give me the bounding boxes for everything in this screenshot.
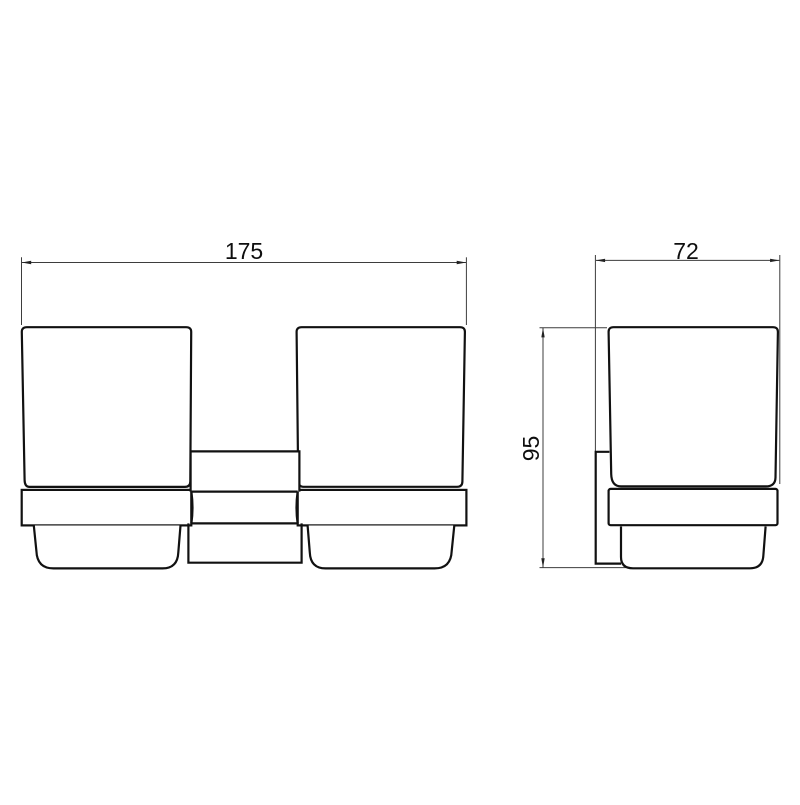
svg-text:95: 95 <box>518 436 544 462</box>
svg-text:175: 175 <box>225 238 263 264</box>
